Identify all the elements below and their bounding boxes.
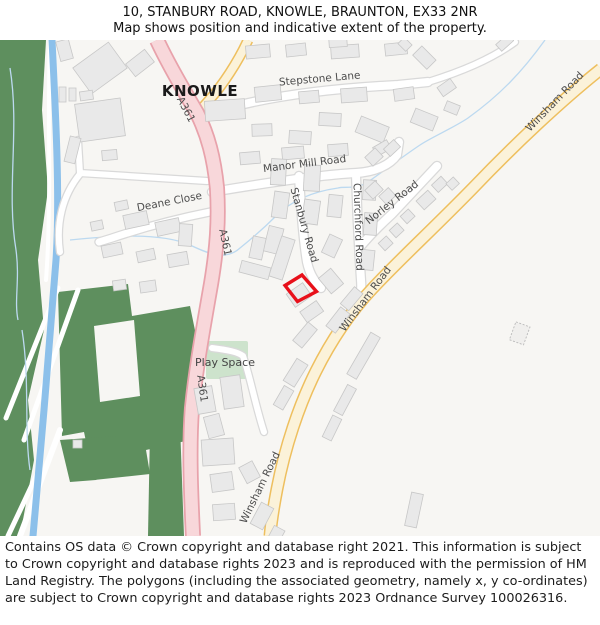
map-container: KNOWLE Play Space Stepstone Lane Manor M… bbox=[0, 40, 600, 536]
label-play-space: Play Space bbox=[195, 356, 255, 369]
map-header: 10, STANBURY ROAD, KNOWLE, BRAUNTON, EX3… bbox=[0, 0, 600, 40]
attribution-footer: Contains OS data © Crown copyright and d… bbox=[0, 536, 600, 625]
property-address-title: 10, STANBURY ROAD, KNOWLE, BRAUNTON, EX3… bbox=[0, 5, 600, 21]
label-knowle: KNOWLE bbox=[162, 82, 238, 100]
copyright-attribution: Contains OS data © Crown copyright and d… bbox=[5, 540, 588, 606]
map-canvas: KNOWLE Play Space Stepstone Lane Manor M… bbox=[0, 40, 600, 536]
map-description: Map shows position and indicative extent… bbox=[0, 21, 600, 37]
